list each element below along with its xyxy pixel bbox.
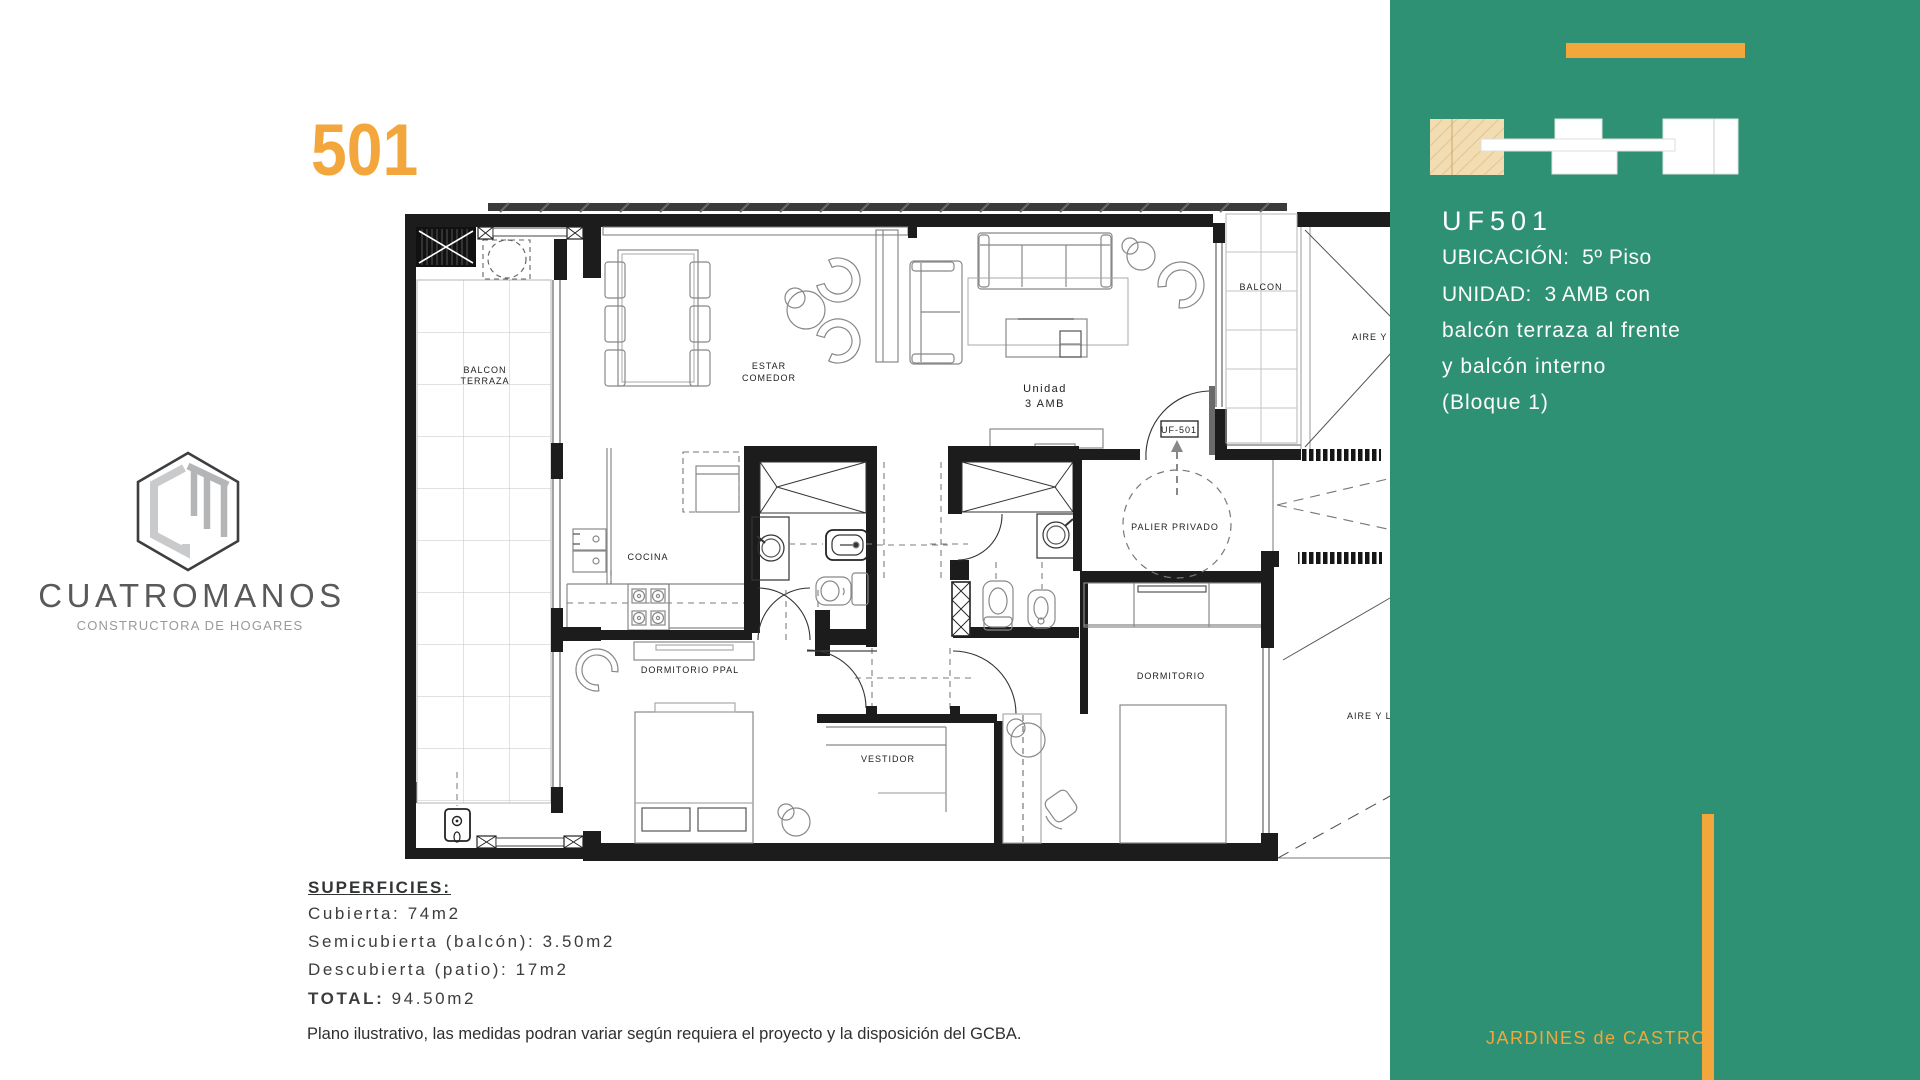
- svg-text:DORMITORIO PPAL: DORMITORIO PPAL: [641, 665, 739, 675]
- svg-text:PALIER PRIVADO: PALIER PRIVADO: [1131, 522, 1219, 532]
- svg-text:CUATROMANOS: CUATROMANOS: [38, 577, 345, 614]
- svg-text:AIRE Y LUZ: AIRE Y LUZ: [1347, 711, 1395, 721]
- svg-text:COCINA: COCINA: [627, 552, 668, 562]
- svg-text:BALCON: BALCON: [463, 365, 506, 375]
- svg-text:CONSTRUCTORA DE HOGARES: CONSTRUCTORA DE HOGARES: [77, 618, 304, 633]
- svg-text:TERRAZA: TERRAZA: [460, 376, 509, 386]
- svg-text:COMEDOR: COMEDOR: [742, 373, 796, 383]
- svg-text:ESTAR: ESTAR: [752, 361, 786, 371]
- svg-text:3 AMB: 3 AMB: [1025, 398, 1065, 410]
- svg-text:DORMITORIO: DORMITORIO: [1137, 671, 1205, 681]
- svg-text:Unidad: Unidad: [1023, 383, 1067, 395]
- svg-text:UF-501: UF-501: [1161, 425, 1197, 435]
- svg-text:VESTIDOR: VESTIDOR: [861, 754, 915, 764]
- svg-text:AIRE Y LUZ: AIRE Y LUZ: [1352, 332, 1395, 342]
- svg-text:BALCON: BALCON: [1239, 282, 1282, 292]
